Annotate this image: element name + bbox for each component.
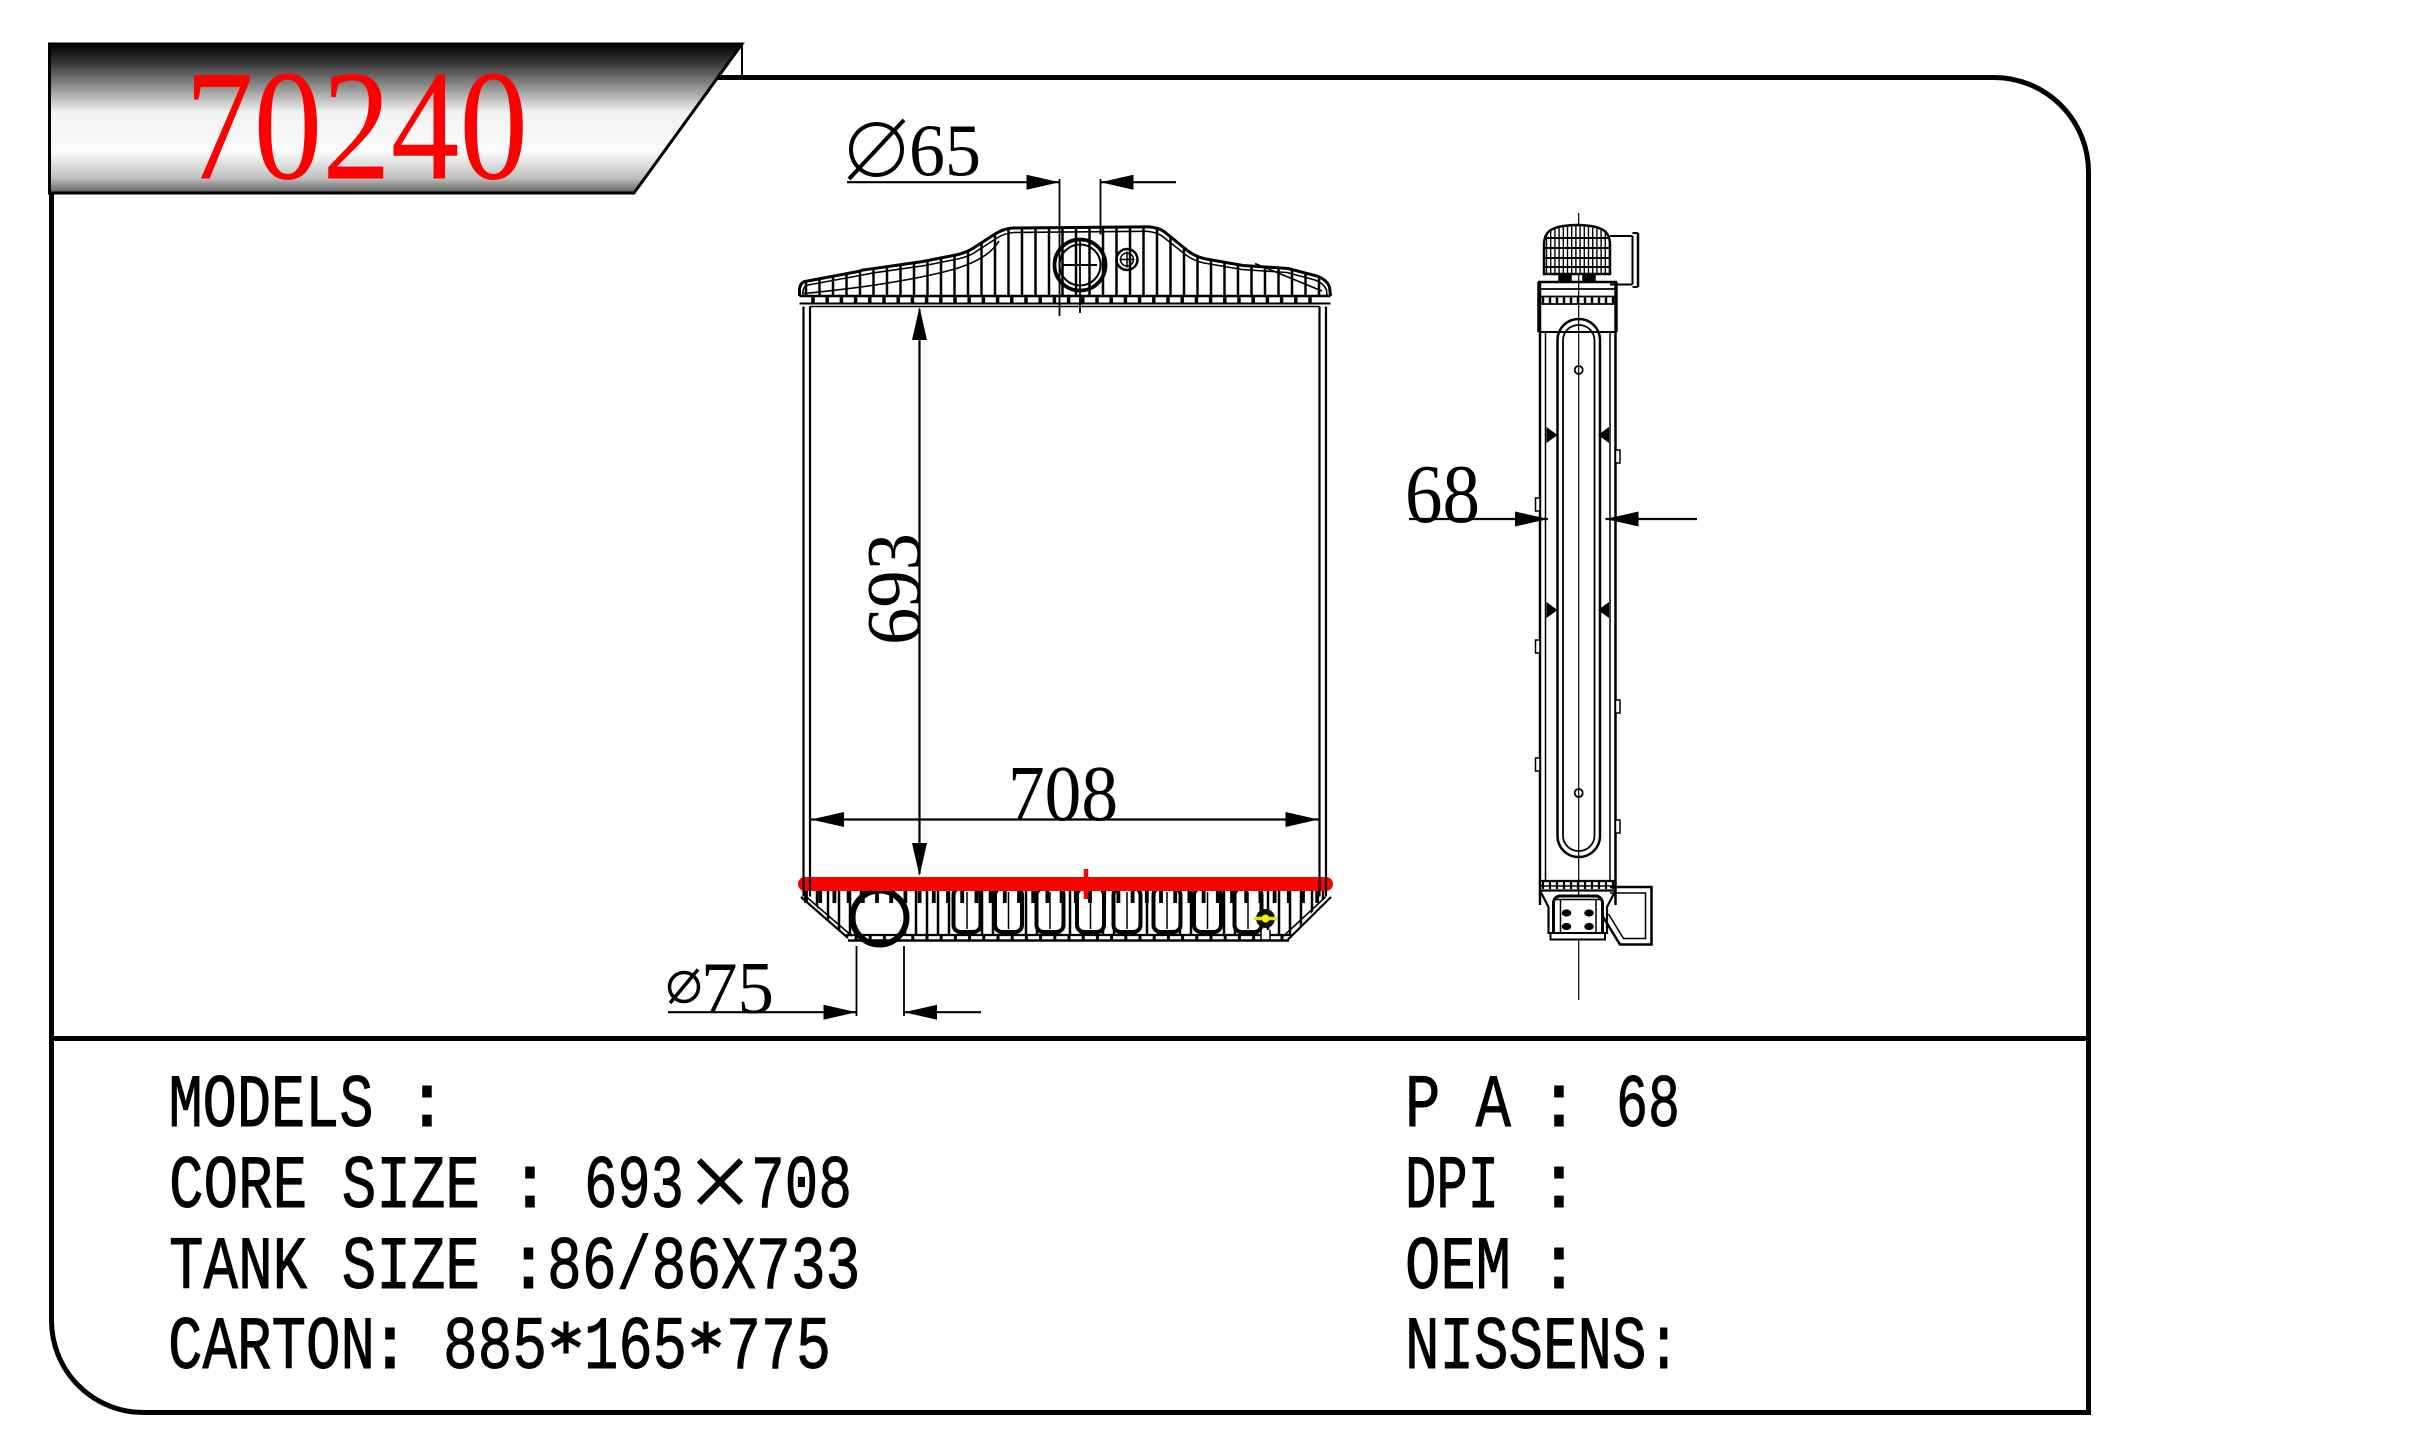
svg-text:885: 885 [443, 1306, 547, 1391]
svg-text:775: 775 [726, 1306, 831, 1391]
svg-text:65: 65 [909, 111, 981, 193]
svg-text:DPI: DPI [1405, 1145, 1499, 1230]
svg-text::: : [1536, 1145, 1581, 1230]
svg-text:693: 693 [851, 533, 937, 645]
svg-text:NISSENS:: NISSENS: [1405, 1306, 1681, 1391]
svg-text::: : [404, 1064, 449, 1149]
svg-text:708: 708 [1008, 751, 1118, 838]
svg-text:708: 708 [751, 1145, 852, 1230]
svg-text:OEM: OEM [1405, 1226, 1511, 1311]
svg-text::: : [367, 1306, 412, 1391]
svg-text:CARTON: CARTON [168, 1306, 375, 1391]
svg-text:68: 68 [1616, 1064, 1680, 1149]
svg-text::: : [506, 1226, 551, 1311]
svg-text:P A: P A [1405, 1064, 1511, 1149]
svg-text:TANK SIZE: TANK SIZE [169, 1226, 480, 1311]
svg-text:693: 693 [584, 1145, 684, 1230]
svg-text::: : [1536, 1226, 1581, 1311]
svg-text:165: 165 [584, 1306, 687, 1391]
svg-text:70240: 70240 [185, 39, 528, 214]
svg-text:86/86X733: 86/86X733 [547, 1226, 861, 1311]
svg-text::: : [1536, 1064, 1581, 1149]
svg-text:CORE SIZE: CORE SIZE [169, 1145, 480, 1230]
svg-text::: : [507, 1145, 552, 1230]
svg-text:MODELS: MODELS [169, 1064, 374, 1149]
svg-text:68: 68 [1405, 448, 1480, 541]
svg-text:75: 75 [701, 948, 774, 1030]
